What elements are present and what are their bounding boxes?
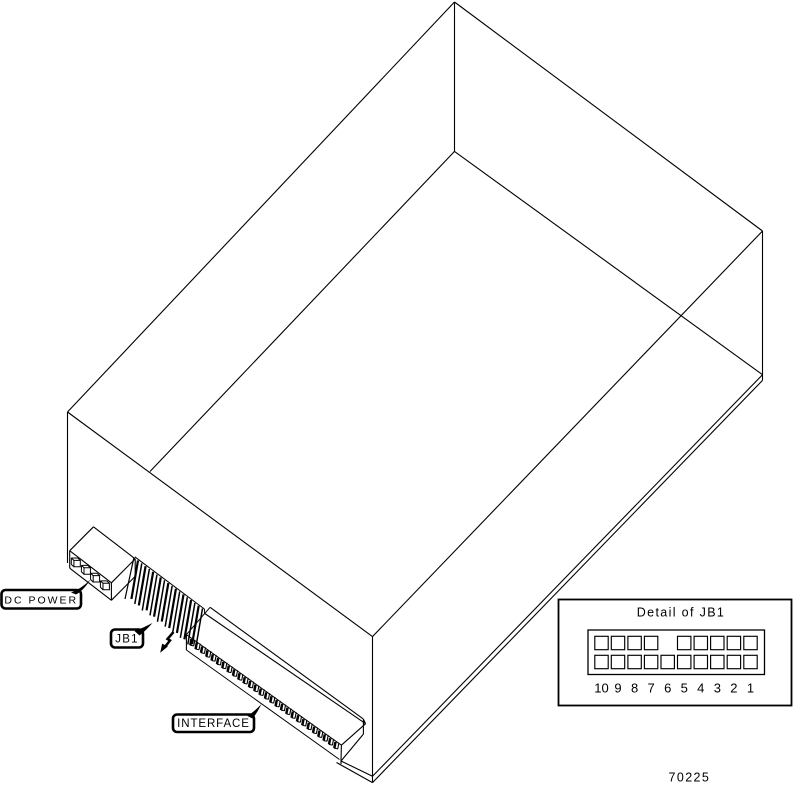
svg-text:9: 9 (614, 681, 621, 696)
svg-text:4: 4 (697, 681, 704, 696)
svg-text:6: 6 (664, 681, 671, 696)
svg-text:5: 5 (681, 681, 688, 696)
svg-text:DC POWER: DC POWER (4, 595, 78, 607)
svg-text:JB1: JB1 (115, 634, 138, 646)
svg-text:1: 1 (747, 681, 754, 696)
svg-text:8: 8 (631, 681, 638, 696)
svg-text:Detail of JB1: Detail of JB1 (637, 606, 725, 620)
svg-text:INTERFACE: INTERFACE (177, 718, 250, 730)
svg-text:70225: 70225 (669, 771, 711, 785)
svg-text:3: 3 (714, 681, 721, 696)
svg-text:10: 10 (594, 681, 608, 696)
svg-text:2: 2 (730, 681, 737, 696)
svg-text:7: 7 (647, 681, 654, 696)
